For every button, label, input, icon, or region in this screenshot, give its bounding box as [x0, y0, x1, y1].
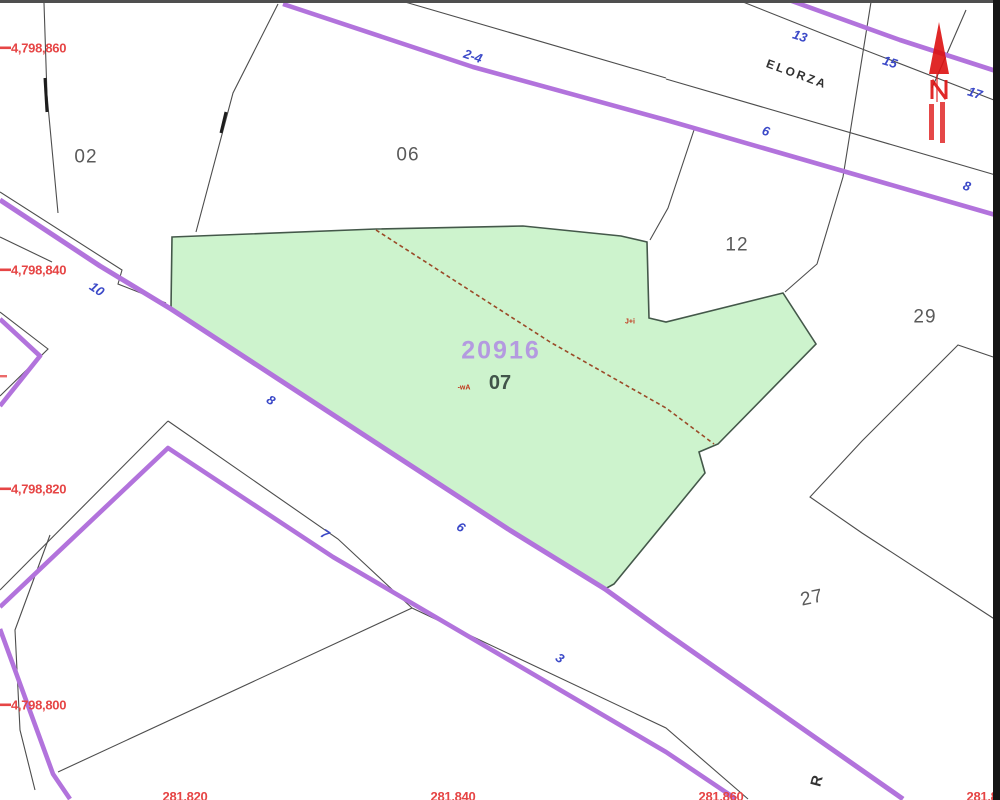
parcel-number-06: 06: [396, 146, 419, 165]
selected-parcel-number: 20916: [461, 339, 541, 364]
map-canvas[interactable]: [0, 0, 1000, 800]
parcel-number-12: 12: [725, 236, 748, 255]
map-viewport[interactable]: 4,798,860 4,798,840 4,798,820 4,798,800 …: [0, 0, 1000, 800]
map-frame-top-border: [0, 0, 1000, 3]
tiny-red-annotation: J+i: [625, 319, 635, 326]
block-corner-a: [0, 319, 40, 406]
coord-label-northing: 4,798,860: [11, 42, 66, 55]
coord-label-northing: 4,798,840: [11, 264, 66, 277]
parcel-number-29: 29: [913, 308, 936, 327]
coord-label-easting: 281,860: [699, 790, 744, 800]
coord-label-northing: 4,798,800: [11, 699, 66, 712]
boundary-emphasis-marks: [45, 78, 226, 133]
coord-label-easting: 281,840: [431, 790, 476, 800]
tiny-red-annotation: -wA: [458, 385, 471, 392]
map-frame-right-border: [993, 0, 1000, 800]
selected-parcel-sub-number: 07: [489, 373, 511, 393]
coord-label-easting: 281,820: [163, 790, 208, 800]
north-arrow-icon: [929, 22, 949, 143]
block-corner-c: [0, 629, 70, 799]
parcel-number-27: 27: [799, 586, 826, 609]
parcel-number-02: 02: [74, 148, 97, 167]
coord-label-northing: 4,798,820: [11, 483, 66, 496]
